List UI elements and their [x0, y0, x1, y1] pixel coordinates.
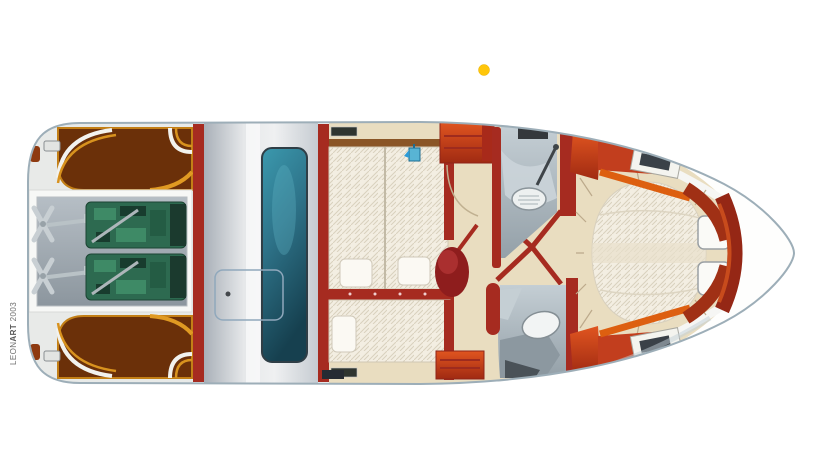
- stern-cleat-top: [44, 141, 60, 151]
- pillow: [340, 259, 372, 287]
- head-aft: [486, 278, 578, 380]
- engine-room: [29, 190, 192, 312]
- boat-floorplan-page: LEONART 2003: [0, 0, 820, 475]
- head-wall-left: [486, 283, 500, 335]
- aft-cabin: [322, 127, 454, 380]
- lower-cabinet: [436, 351, 484, 379]
- boat-floorplan-image: [0, 0, 820, 475]
- pillow: [398, 257, 430, 285]
- pillow: [332, 316, 356, 352]
- bulkhead-mid: [318, 124, 329, 382]
- bow-cabin: [570, 131, 736, 375]
- watermark-credit: LEONART 2003: [7, 287, 20, 365]
- cabin-window-top: [331, 127, 357, 136]
- berth-divider-wall: [329, 289, 454, 300]
- sink-basin: [512, 188, 546, 210]
- cockpit-area: [204, 123, 318, 383]
- head-wall-left: [492, 127, 501, 268]
- watermark-brand: ART: [9, 324, 18, 342]
- watermark-year: 2003: [9, 302, 18, 321]
- yellow-dot-marker: [479, 65, 490, 76]
- stern-cleat-bottom: [44, 351, 60, 361]
- bulkhead-aft: [193, 124, 204, 382]
- watermark-prefix: LEON: [9, 342, 18, 365]
